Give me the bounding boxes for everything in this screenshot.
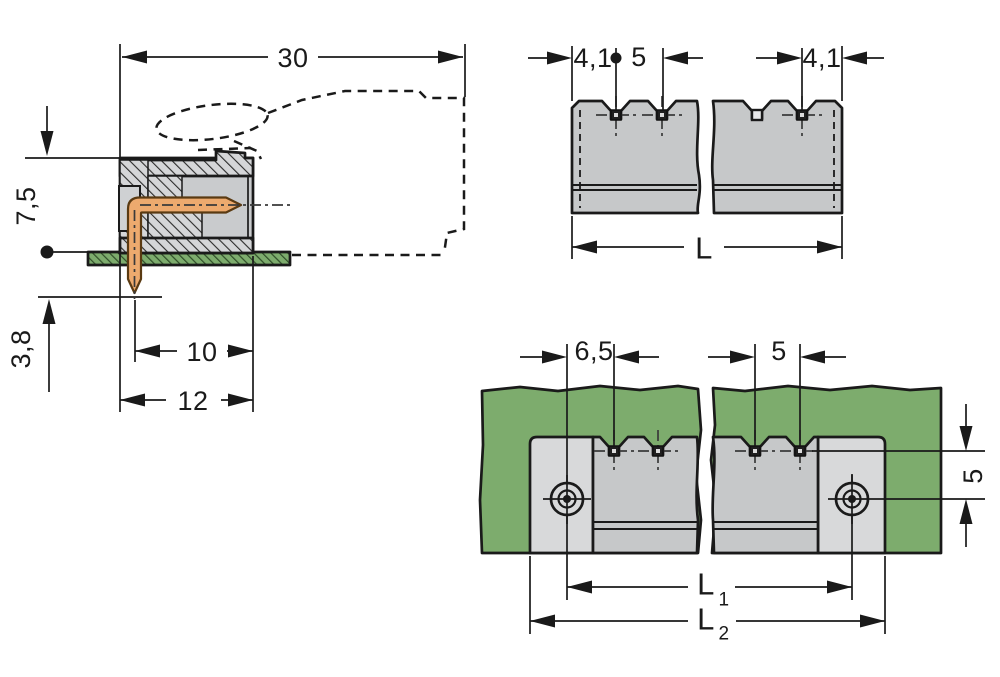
background (0, 0, 1000, 677)
dim-3-8-label: 3,8 (6, 329, 36, 368)
lower-step-hatched (148, 212, 202, 238)
dim-L1-label: L (697, 567, 715, 602)
dim-L-label: L (695, 231, 713, 266)
pin-strip-right-section (712, 101, 842, 213)
dim-L1-subscript: 1 (718, 590, 729, 611)
dim-10-label: 10 (186, 337, 217, 367)
dim-5-pitch-pcb-label: 5 (771, 336, 787, 366)
dim-4-1-left-label: 4,1 (573, 43, 612, 73)
dim-L2-subscript: 2 (718, 624, 729, 645)
dim-12-label: 12 (177, 386, 208, 416)
dim-6-5-label: 6,5 (574, 336, 613, 366)
pin-contact-hollow (752, 110, 762, 120)
technical-drawing-page: 30 7,5 3,8 10 (0, 0, 1000, 677)
pin-strip-left-section (572, 101, 700, 213)
connector-dimension-drawing: 30 7,5 3,8 10 (0, 0, 1000, 677)
dim-7-5-label: 7,5 (11, 186, 41, 225)
upper-step-hatched (148, 176, 182, 198)
dim-4-1-right-label: 4,1 (802, 43, 841, 73)
dim-5-pitch-top-label: 5 (631, 42, 647, 72)
dim-30-label: 30 (277, 43, 308, 73)
dim-L2-label: L (697, 602, 715, 637)
dim-5-vertical-label: 5 (958, 468, 988, 484)
